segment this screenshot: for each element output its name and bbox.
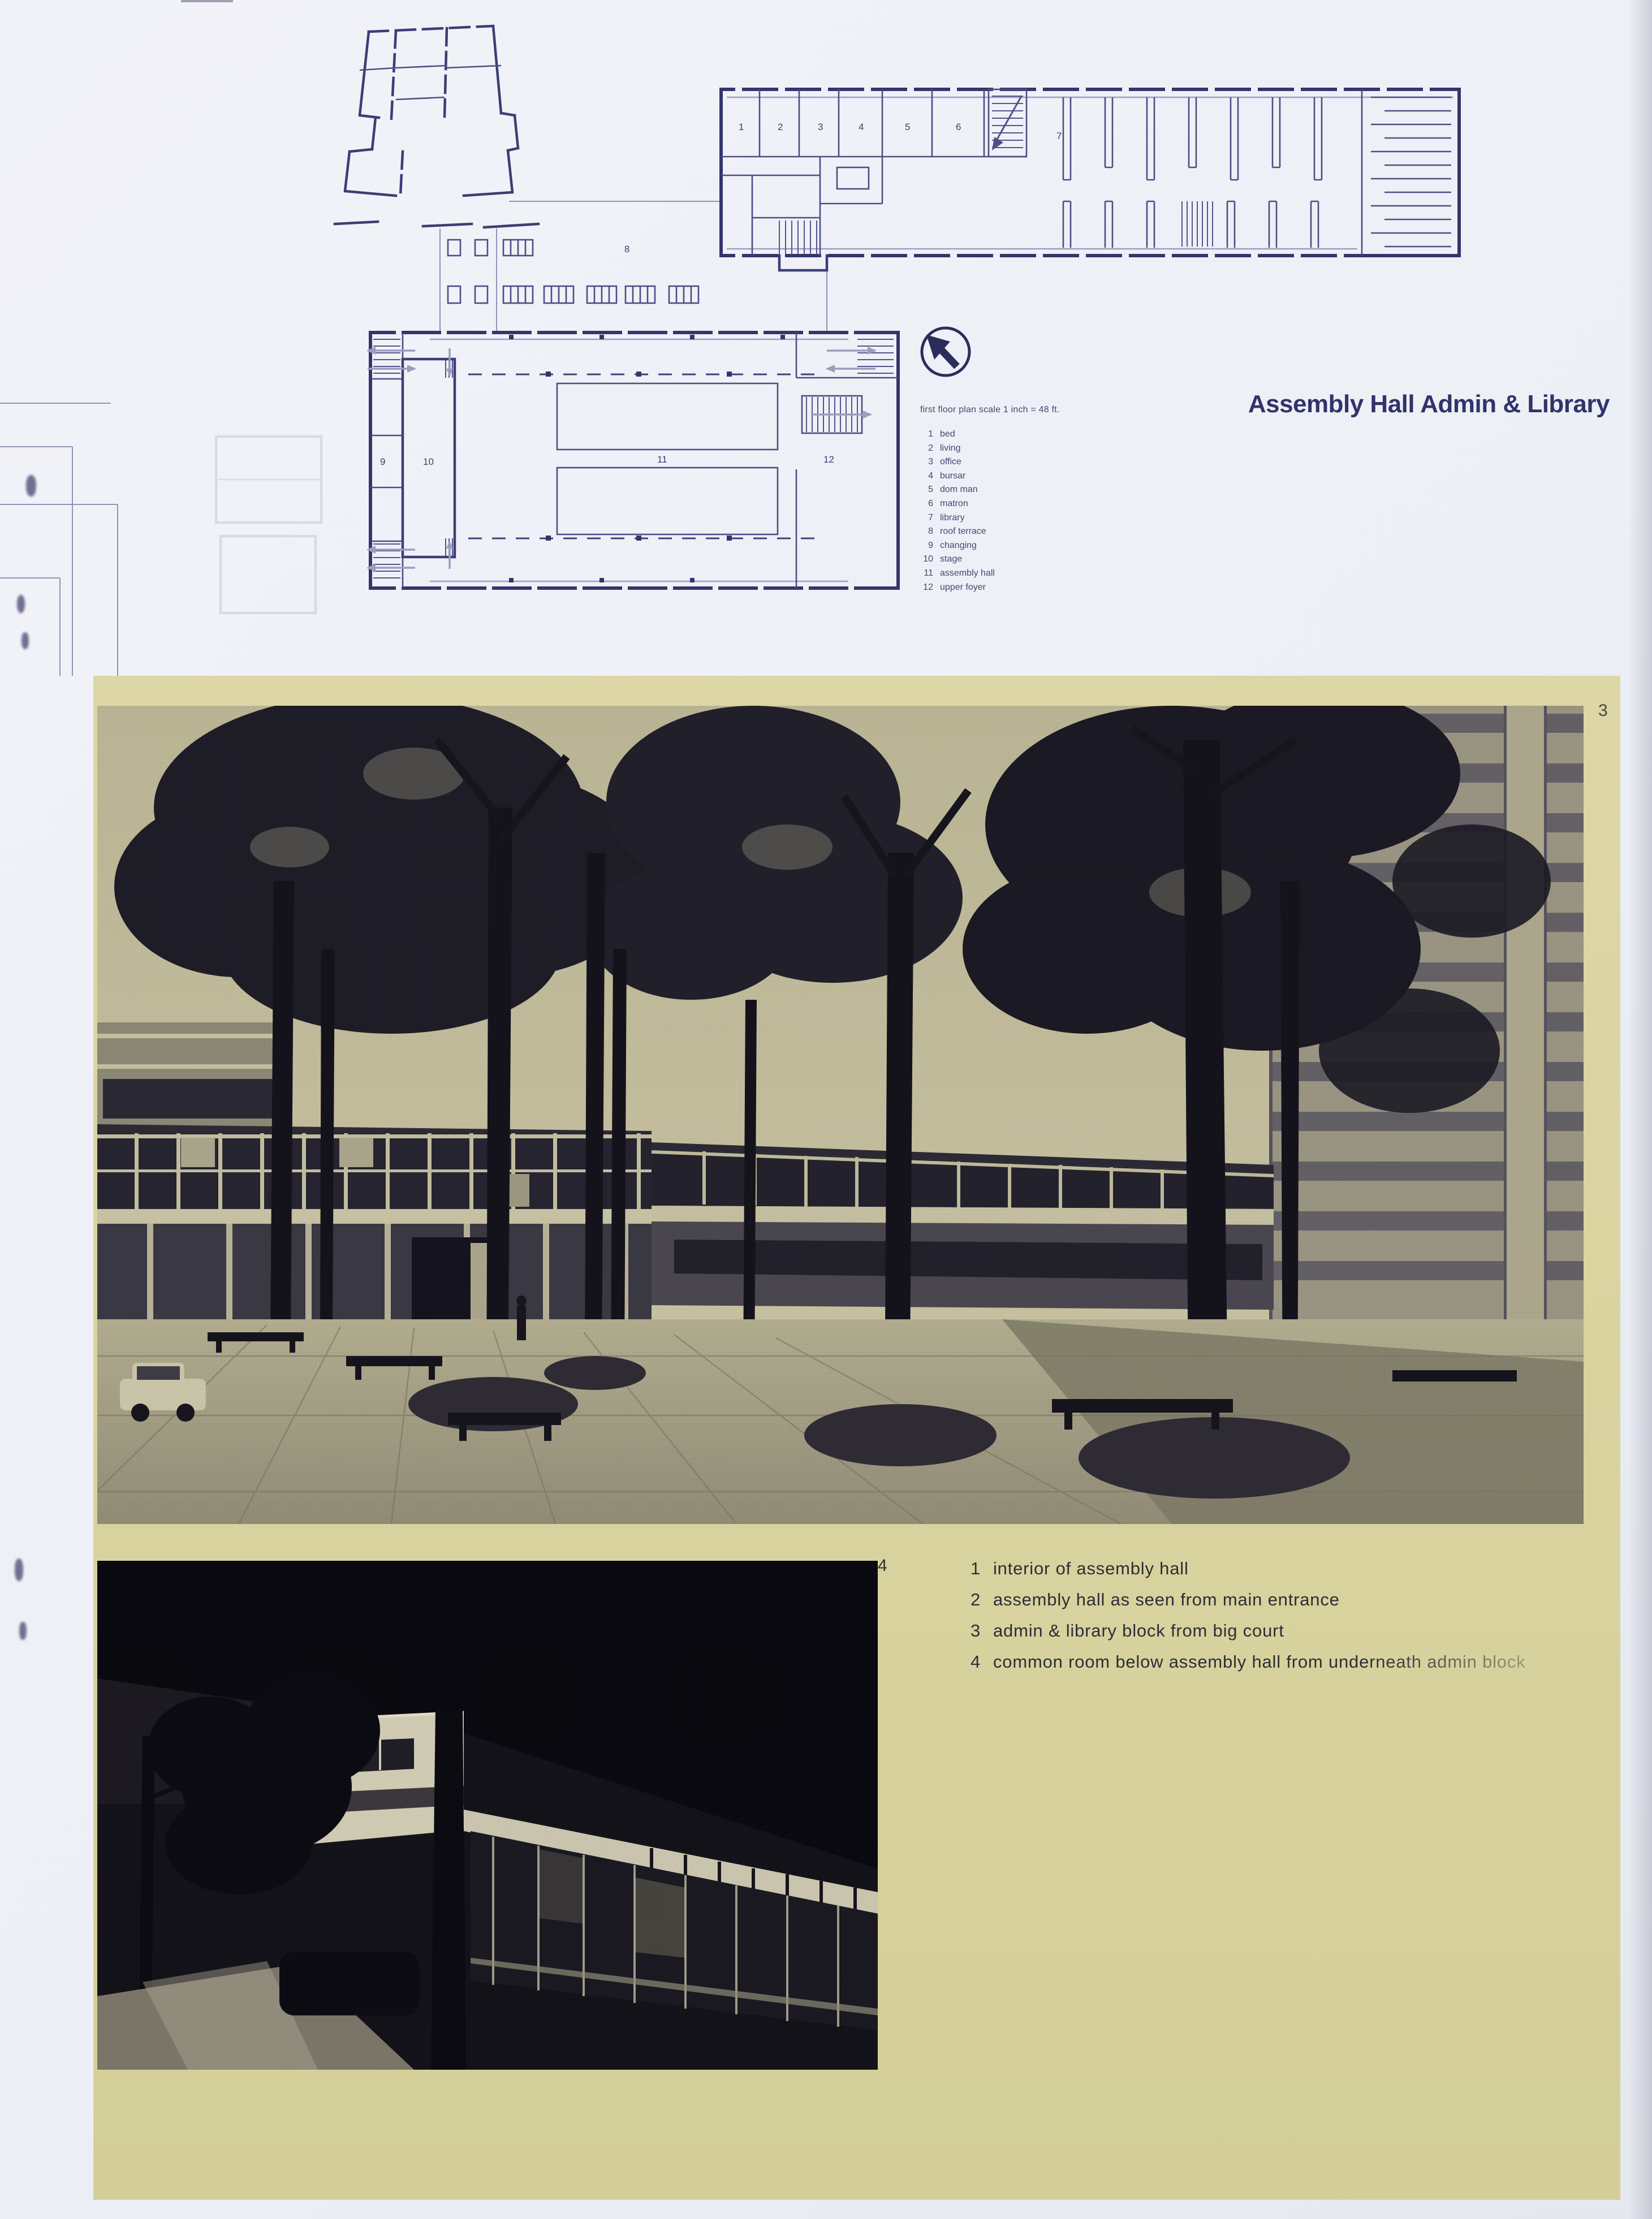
room-label-2: 2 [778,122,783,132]
legend-num: 11 [921,567,933,581]
legend-num: 8 [921,525,933,539]
caption-num: 2 [961,1584,981,1615]
room-label-12: 12 [823,454,834,465]
book-page: 8 1 2 3 4 [0,0,1652,2219]
legend-label: bursar [940,469,965,483]
photo-label-4: 4 [878,1556,887,1575]
binding-mark [26,475,36,497]
legend-item: 1bed [921,428,995,442]
room-label-3: 3 [818,122,823,132]
legend-label: changing [940,539,977,553]
legend-item: 12upper foyer [921,581,995,595]
photo-common-room [97,1561,878,2070]
legend-item: 2living [921,442,995,456]
legend-label: roof terrace [940,525,986,539]
binding-mark [19,1622,27,1640]
assembly-hall-plan: 9 10 11 12 [366,333,898,588]
room-label-5: 5 [905,122,910,132]
photo-label-3: 3 [1598,701,1608,720]
binding-mark [17,595,25,613]
caption-num: 4 [961,1646,981,1677]
caption-num: 1 [961,1553,981,1584]
north-arrow-icon [922,328,969,375]
caption-item: 4common room below assembly hall from un… [961,1646,1623,1677]
legend-label: bed [940,428,955,442]
caption-num: 3 [961,1615,981,1646]
leader-lines-left-margin [0,201,827,676]
legend-label: assembly hall [940,567,995,581]
admin-library-plan: 1 2 3 4 5 6 7 [721,89,1459,270]
plan-legend: 1bed 2living 3office 4bursar 5dom man 6m… [921,428,995,594]
room-label-6: 6 [956,122,961,132]
legend-num: 5 [921,483,933,497]
legend-num: 4 [921,469,933,483]
room-label-9: 9 [380,456,385,467]
legend-label: living [940,442,960,456]
legend-num: 3 [921,455,933,469]
legend-label: dom man [940,483,978,497]
binding-mark [21,632,29,649]
caption-text: admin & library block from big court [993,1615,1284,1646]
legend-num: 2 [921,442,933,456]
legend-item: 8roof terrace [921,525,995,539]
page-edge-shadow [1628,0,1652,2219]
page-showthrough-ghost [216,437,321,613]
legend-item: 7library [921,511,995,525]
legend-item: 4bursar [921,469,995,483]
room-label-4: 4 [859,122,864,132]
room-label-11: 11 [657,454,667,465]
caption-text: common room below assembly hall from und… [993,1646,1525,1677]
binding-mark [15,1559,23,1581]
photo-big-court [97,706,1584,1524]
photo-grain [97,706,1584,1524]
legend-num: 9 [921,539,933,553]
floor-plans-drawing: 8 1 2 3 4 [0,0,1652,679]
legend-num: 1 [921,428,933,442]
legend-num: 10 [921,552,933,567]
caption-item: 1interior of assembly hall [961,1553,1623,1584]
legend-item: 6matron [921,497,995,511]
caption-item: 3admin & library block from big court [961,1615,1623,1646]
plan-scale-note: first floor plan scale 1 inch = 48 ft. [920,405,1059,415]
legend-item: 9changing [921,539,995,553]
page-title: Assembly Hall Admin & Library [1244,390,1610,418]
caption-text: assembly hall as seen from main entrance [993,1584,1340,1615]
room-label-10: 10 [423,456,434,467]
caption-text: interior of assembly hall [993,1553,1189,1584]
legend-label: upper foyer [940,581,986,595]
legend-item: 11assembly hall [921,567,995,581]
legend-label: office [940,455,961,469]
room-label-7: 7 [1056,131,1062,141]
legend-label: library [940,511,965,525]
legend-num: 6 [921,497,933,511]
room-label-1: 1 [739,122,744,132]
legend-label: matron [940,497,968,511]
room-label-8: 8 [624,244,629,254]
legend-num: 12 [921,581,933,595]
dorm-block-plan [335,26,518,226]
legend-item: 3office [921,455,995,469]
legend-item: 5dom man [921,483,995,497]
legend-label: stage [940,552,962,567]
legend-item: 10stage [921,552,995,567]
photo-grain [97,1561,878,2070]
scan-edge-mark [181,0,233,2]
caption-item: 2assembly hall as seen from main entranc… [961,1584,1623,1615]
roof-terrace-plan: 8 [448,224,698,303]
photo-captions: 1interior of assembly hall 2assembly hal… [961,1553,1623,1677]
legend-num: 7 [921,511,933,525]
